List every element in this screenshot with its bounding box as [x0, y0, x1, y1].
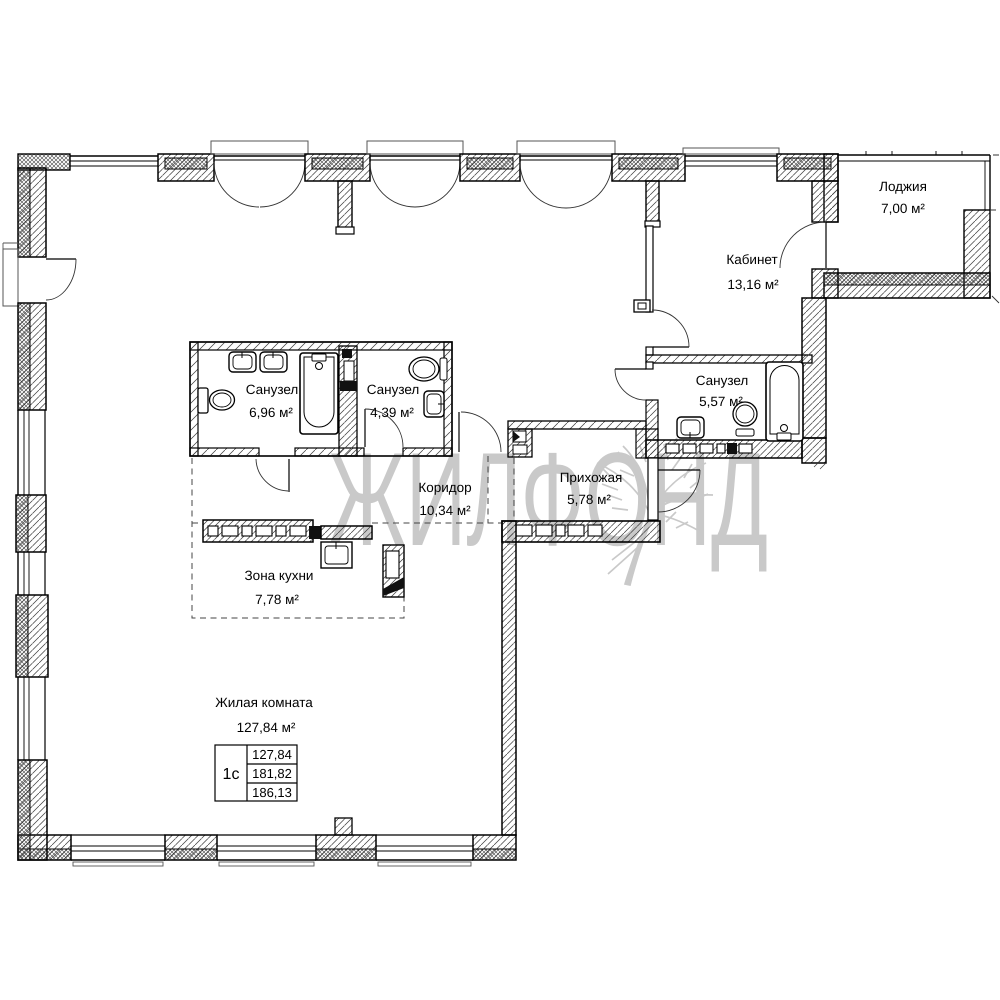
svg-text:Кабинет: Кабинет: [726, 252, 777, 267]
svg-text:13,16 м²: 13,16 м²: [727, 277, 779, 292]
svg-text:127,84 м²: 127,84 м²: [237, 720, 296, 735]
svg-text:7,78 м²: 7,78 м²: [255, 592, 299, 607]
svg-text:4,39 м²: 4,39 м²: [370, 405, 414, 420]
svg-text:Прихожая: Прихожая: [560, 470, 623, 485]
svg-text:5,78 м²: 5,78 м²: [567, 492, 611, 507]
svg-text:186,13: 186,13: [252, 785, 292, 800]
svg-text:1с: 1с: [223, 766, 240, 783]
svg-text:Жилая комната: Жилая комната: [215, 695, 313, 710]
svg-text:6,96 м²: 6,96 м²: [249, 405, 293, 420]
svg-text:Лоджия: Лоджия: [879, 179, 927, 194]
svg-text:181,82: 181,82: [252, 766, 292, 781]
svg-text:Санузел: Санузел: [246, 382, 299, 397]
svg-text:5,57 м²: 5,57 м²: [699, 394, 743, 409]
svg-text:Зона кухни: Зона кухни: [245, 568, 314, 583]
svg-text:Санузел: Санузел: [696, 373, 749, 388]
svg-text:127,84: 127,84: [252, 747, 292, 762]
svg-text:Коридор: Коридор: [418, 480, 471, 495]
svg-text:Санузел: Санузел: [367, 382, 420, 397]
svg-text:7,00 м²: 7,00 м²: [881, 201, 925, 216]
svg-text:10,34 м²: 10,34 м²: [419, 503, 471, 518]
